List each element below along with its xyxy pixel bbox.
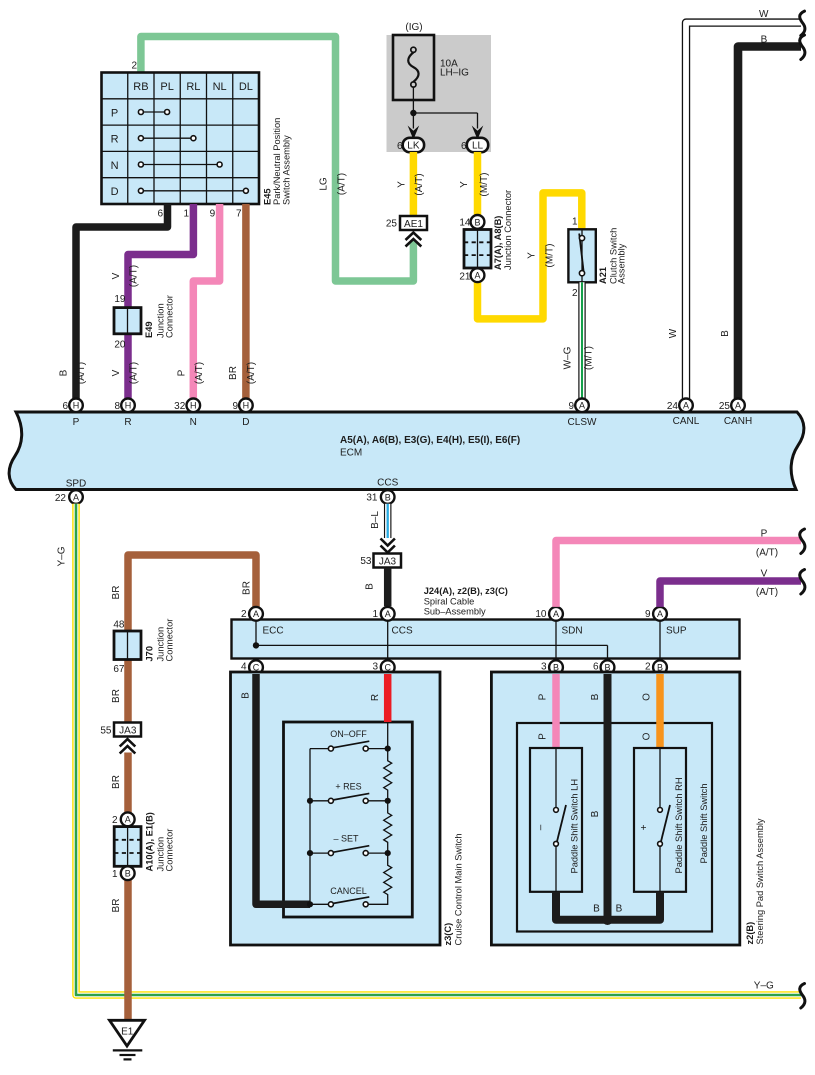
svg-text:BR: BR <box>242 581 253 595</box>
svg-text:Assembly: Assembly <box>617 243 627 284</box>
svg-text:67: 67 <box>113 664 125 675</box>
svg-text:B: B <box>590 810 601 817</box>
svg-text:BR: BR <box>111 586 122 600</box>
svg-text:6: 6 <box>157 209 163 220</box>
svg-text:SDN: SDN <box>562 626 583 637</box>
svg-text:2: 2 <box>112 815 118 826</box>
svg-text:BR: BR <box>111 689 122 703</box>
svg-text:(M/T): (M/T) <box>545 244 556 268</box>
svg-text:V: V <box>761 569 768 580</box>
svg-text:22: 22 <box>55 493 67 504</box>
svg-text:P: P <box>538 693 549 700</box>
svg-text:8: 8 <box>114 401 120 412</box>
svg-text:B: B <box>365 583 376 590</box>
svg-text:31: 31 <box>366 493 378 504</box>
svg-text:A: A <box>579 401 585 411</box>
svg-text:Y: Y <box>459 181 470 188</box>
svg-text:CANH: CANH <box>724 416 752 427</box>
svg-text:B: B <box>616 904 623 915</box>
svg-text:B: B <box>385 492 391 502</box>
svg-text:B: B <box>720 330 731 337</box>
svg-text:A: A <box>657 609 663 619</box>
svg-text:H: H <box>73 401 80 411</box>
svg-text:BR: BR <box>111 775 122 789</box>
svg-text:(A/T): (A/T) <box>756 587 778 598</box>
svg-text:Y: Y <box>397 181 408 188</box>
svg-text:A: A <box>474 271 480 281</box>
svg-text:PL: PL <box>160 81 173 93</box>
svg-text:Connector: Connector <box>165 295 175 338</box>
svg-text:A: A <box>253 609 259 619</box>
svg-text:O: O <box>642 693 653 701</box>
svg-text:9: 9 <box>210 209 216 220</box>
svg-text:CANCEL: CANCEL <box>330 886 367 896</box>
svg-text:32: 32 <box>174 401 186 412</box>
svg-text:B: B <box>241 692 252 699</box>
svg-text:J24(A), z2(B), z3(C): J24(A), z2(B), z3(C) <box>424 586 508 596</box>
svg-text:P: P <box>761 529 768 540</box>
svg-text:24: 24 <box>667 401 679 412</box>
svg-text:A: A <box>735 401 741 411</box>
svg-text:20: 20 <box>114 340 126 351</box>
svg-text:ECC: ECC <box>263 626 284 637</box>
svg-text:– SET: – SET <box>333 834 359 844</box>
svg-text:53: 53 <box>360 556 372 567</box>
svg-text:+ RES: + RES <box>335 782 361 792</box>
svg-text:W: W <box>759 9 769 20</box>
svg-text:A: A <box>683 401 689 411</box>
svg-text:48: 48 <box>113 620 125 631</box>
svg-text:A10(A), E1(B): A10(A), E1(B) <box>145 812 155 871</box>
svg-text:P: P <box>177 369 188 376</box>
svg-text:+: + <box>639 824 650 830</box>
svg-text:LL: LL <box>472 141 484 152</box>
svg-text:W: W <box>668 328 679 338</box>
svg-text:Paddle Shift Switch LH: Paddle Shift Switch LH <box>570 779 580 874</box>
svg-text:LK: LK <box>407 141 420 152</box>
svg-text:P: P <box>538 733 549 740</box>
svg-text:B–L: B–L <box>370 511 381 529</box>
svg-text:z3(C): z3(C) <box>443 923 453 946</box>
svg-text:W–G: W–G <box>563 346 574 369</box>
svg-text:V: V <box>111 272 122 279</box>
svg-text:14: 14 <box>459 218 471 229</box>
svg-text:NL: NL <box>213 81 227 93</box>
svg-text:JA3: JA3 <box>119 726 137 737</box>
svg-text:D: D <box>242 417 249 428</box>
svg-text:25: 25 <box>386 219 398 230</box>
svg-text:A21: A21 <box>598 267 608 284</box>
svg-text:A: A <box>385 609 391 619</box>
svg-text:A: A <box>125 815 131 825</box>
svg-text:(A/T): (A/T) <box>756 548 778 559</box>
svg-text:(A/T): (A/T) <box>76 362 87 384</box>
svg-text:O: O <box>642 732 653 740</box>
svg-text:D: D <box>111 186 119 198</box>
svg-text:Steering Pad Switch Assembly: Steering Pad Switch Assembly <box>755 818 765 944</box>
svg-text:CLSW: CLSW <box>568 417 597 428</box>
svg-text:N: N <box>111 160 119 172</box>
svg-text:E49: E49 <box>144 321 154 338</box>
svg-text:E45: E45 <box>263 188 273 205</box>
svg-text:1: 1 <box>112 869 118 880</box>
svg-text:Paddle Shift Switch RH: Paddle Shift Switch RH <box>674 777 684 873</box>
svg-text:CCS: CCS <box>392 626 413 637</box>
svg-text:ON–OFF: ON–OFF <box>330 729 367 739</box>
svg-text:25: 25 <box>719 401 731 412</box>
svg-text:9: 9 <box>232 401 238 412</box>
svg-text:2: 2 <box>241 609 247 620</box>
svg-text:B: B <box>761 35 768 46</box>
svg-text:Park/Neutral Position: Park/Neutral Position <box>272 118 282 205</box>
svg-text:9: 9 <box>568 401 574 412</box>
svg-text:Sub–Assembly: Sub–Assembly <box>424 606 486 616</box>
svg-text:BR: BR <box>111 899 122 913</box>
svg-text:CCS: CCS <box>377 478 398 489</box>
svg-text:CANL: CANL <box>673 416 700 427</box>
svg-text:DL: DL <box>239 81 253 93</box>
svg-text:SPD: SPD <box>66 479 87 490</box>
svg-text:LG: LG <box>319 177 330 191</box>
svg-text:55: 55 <box>100 726 112 737</box>
svg-text:A: A <box>73 492 79 502</box>
svg-text:1: 1 <box>372 609 378 620</box>
svg-text:(A/T): (A/T) <box>414 173 425 195</box>
svg-text:9: 9 <box>645 609 651 620</box>
svg-text:1: 1 <box>183 209 189 220</box>
svg-text:6: 6 <box>62 401 68 412</box>
svg-text:V: V <box>111 369 122 376</box>
svg-text:–: – <box>536 824 547 830</box>
svg-text:21: 21 <box>459 272 471 283</box>
svg-text:(A/T): (A/T) <box>129 362 140 384</box>
svg-text:(A/T): (A/T) <box>129 265 140 287</box>
svg-text:(A/T): (A/T) <box>246 362 257 384</box>
svg-text:H: H <box>243 401 250 411</box>
svg-text:Paddle Shift Switch: Paddle Shift Switch <box>699 783 709 863</box>
svg-text:N: N <box>190 417 197 428</box>
svg-text:(M/T): (M/T) <box>584 346 595 370</box>
svg-text:E1: E1 <box>121 1027 134 1038</box>
svg-text:R: R <box>124 417 131 428</box>
svg-text:Y–G: Y–G <box>754 981 774 992</box>
svg-text:1: 1 <box>572 217 578 228</box>
svg-text:Cruise Control Main Switch: Cruise Control Main Switch <box>454 833 464 945</box>
svg-text:LH–IG: LH–IG <box>440 68 469 79</box>
svg-text:R: R <box>111 134 119 146</box>
svg-text:Y–G: Y–G <box>57 546 68 566</box>
svg-text:Switch Assembly: Switch Assembly <box>282 135 292 205</box>
svg-text:2: 2 <box>572 288 578 299</box>
svg-text:(M/T): (M/T) <box>479 173 490 197</box>
svg-text:Connector: Connector <box>165 619 175 662</box>
svg-text:RL: RL <box>186 81 200 93</box>
svg-text:R: R <box>370 694 381 701</box>
svg-text:A: A <box>553 609 559 619</box>
svg-text:A7(A), A8(B): A7(A), A8(B) <box>493 216 503 270</box>
svg-text:Spiral Cable: Spiral Cable <box>424 596 475 606</box>
svg-text:(A/T): (A/T) <box>194 362 205 384</box>
svg-text:A5(A), A6(B), E3(G), E4(H), E5: A5(A), A6(B), E3(G), E4(H), E5(I), E6(F) <box>340 435 520 446</box>
svg-text:ECM: ECM <box>340 448 362 459</box>
svg-text:B: B <box>593 904 600 915</box>
svg-text:J70: J70 <box>145 646 155 662</box>
svg-text:SUP: SUP <box>666 626 687 637</box>
svg-text:RB: RB <box>133 81 148 93</box>
svg-text:H: H <box>190 401 197 411</box>
svg-text:AE1: AE1 <box>404 219 423 230</box>
svg-text:B: B <box>125 869 131 879</box>
svg-text:Connector: Connector <box>165 829 175 872</box>
svg-text:(IG): (IG) <box>405 22 422 33</box>
svg-text:19: 19 <box>114 294 126 305</box>
svg-text:Y: Y <box>527 252 538 259</box>
svg-text:10: 10 <box>535 609 547 620</box>
svg-text:Junction Connector: Junction Connector <box>503 190 513 270</box>
svg-text:7: 7 <box>236 209 242 220</box>
svg-text:B: B <box>59 369 70 376</box>
svg-text:P: P <box>73 417 80 428</box>
svg-text:BR: BR <box>228 366 239 380</box>
svg-text:B: B <box>474 217 480 227</box>
svg-text:(A/T): (A/T) <box>337 173 348 195</box>
svg-text:B: B <box>590 693 601 700</box>
svg-text:z2(B): z2(B) <box>745 922 755 945</box>
svg-text:2: 2 <box>131 61 137 72</box>
svg-text:JA3: JA3 <box>379 557 397 568</box>
svg-text:H: H <box>125 401 132 411</box>
svg-text:P: P <box>111 107 118 119</box>
